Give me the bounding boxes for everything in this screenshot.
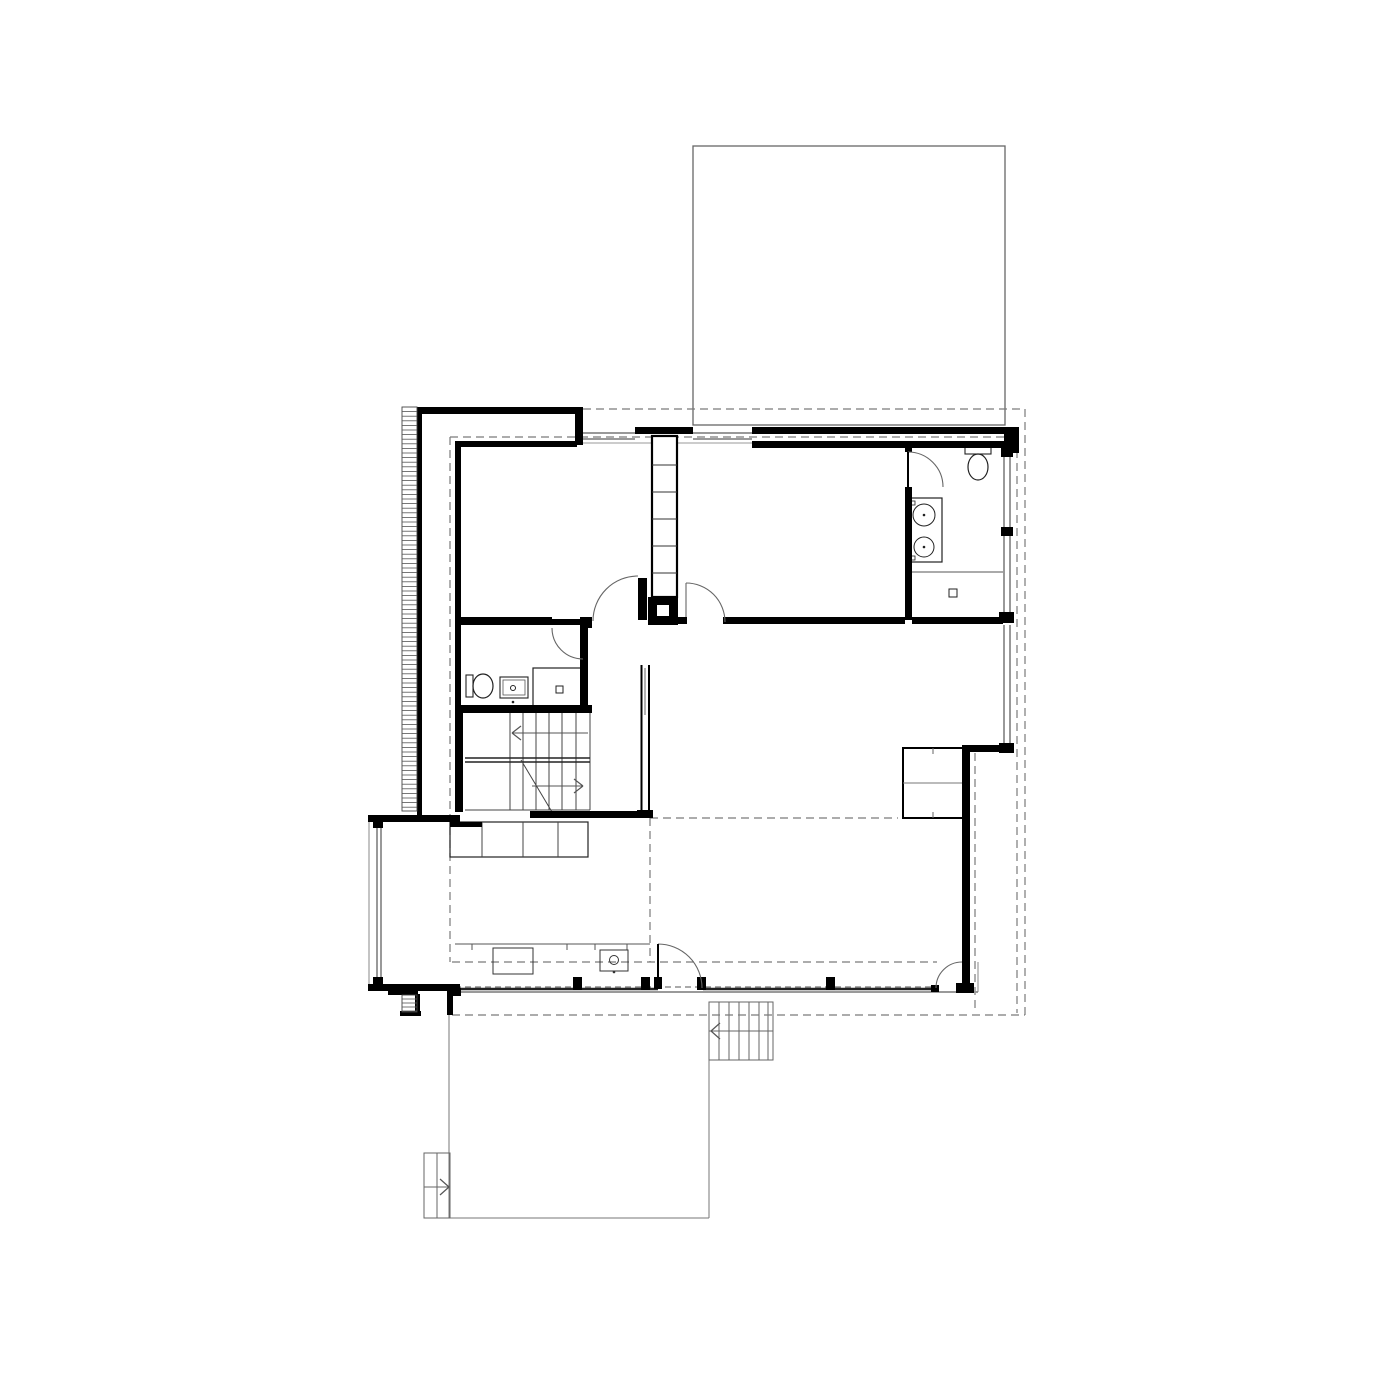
stair-down-arrow-head	[574, 779, 583, 786]
vanity-basin-dot	[923, 514, 926, 517]
east-window-mullion	[1001, 527, 1013, 536]
chimney-flue	[657, 605, 669, 616]
bay-mullion	[373, 977, 383, 985]
kitchen-sink-drain	[610, 956, 619, 965]
mullion-post	[641, 977, 650, 990]
wall-bedroom2-jamb	[678, 617, 687, 624]
east-window-corner	[999, 612, 1014, 623]
door-arc-bath-sw	[552, 628, 583, 659]
floor-plan-canvas	[0, 0, 1400, 1400]
floor-plan-page	[0, 0, 1400, 1400]
door-arc-bedroom2	[686, 583, 725, 622]
toilet-sw-tank	[466, 675, 473, 697]
vanity-basin-dot	[923, 546, 926, 549]
wall-bath-ne-bottom	[912, 617, 1003, 624]
wall-north-outer	[752, 427, 1006, 434]
wall-west-outer	[417, 407, 422, 817]
stair-up-arrow-head	[512, 733, 521, 740]
wall-north-band	[635, 427, 693, 434]
wall-north-west-jog	[575, 411, 583, 445]
east-window-corner	[999, 743, 1014, 753]
wall-north-west	[417, 407, 583, 414]
wall-sw-corner-cap	[447, 988, 461, 996]
toilet-sw-bowl	[473, 674, 493, 698]
sink-sw-drain	[511, 686, 516, 691]
door-arc-terrace	[658, 944, 702, 988]
mullion-post	[573, 977, 582, 990]
door-arc-bath-ne	[908, 452, 943, 487]
wall-bath-ne-west	[905, 487, 912, 620]
exterior-stair-sw-arrow	[440, 1187, 449, 1195]
vanity-ne	[907, 498, 942, 562]
stair-down-arrow-head	[574, 786, 583, 793]
sink-sw-dot	[512, 701, 515, 704]
understair-cabinet-cap	[450, 822, 482, 827]
wall-north-inner	[752, 441, 1006, 448]
bay-mullion	[373, 820, 383, 828]
wall-corner-piece	[580, 617, 592, 628]
wall-bedroom1-top	[455, 441, 577, 447]
door-jamb-block	[931, 985, 939, 992]
wall-bedroom1-left	[455, 441, 461, 625]
wall-sw-step	[388, 989, 418, 995]
shower-ne-drain	[949, 589, 957, 597]
wall-bath-ne-stub	[905, 443, 912, 452]
wall-stair-south	[530, 811, 652, 818]
shower-sw-drain	[556, 686, 563, 693]
wall-bath-sw-east	[580, 628, 588, 712]
kitchen-appliance	[493, 948, 533, 974]
wall-bath-sw-bottom	[455, 705, 592, 713]
toilet-ne-bowl	[968, 454, 988, 480]
wall-door-jamb	[638, 578, 647, 620]
upper-terrace-outline	[693, 146, 1005, 425]
wall-pocket-foot	[637, 810, 653, 818]
understair-cabinet	[450, 822, 588, 857]
wall-bedroom2-bottom	[723, 617, 905, 624]
wall-stair-west	[455, 713, 463, 812]
facade-hatch-sw	[402, 995, 417, 1012]
kitchen-sink-dot	[613, 971, 616, 974]
wall-bedroom1-bottom	[455, 617, 552, 625]
stair-up-arrow-head	[512, 726, 521, 733]
exterior-stair-sw-arrow	[440, 1179, 449, 1187]
shower-sw	[533, 668, 584, 711]
kitchen-sink	[600, 950, 628, 971]
east-window-mullion	[1001, 448, 1013, 457]
door-arc-bedroom1	[593, 576, 638, 621]
wall-bath-sw-left	[455, 625, 461, 712]
wall-living-east	[962, 748, 970, 990]
wall-se-corner	[956, 983, 974, 993]
sink-sw-inner	[503, 680, 525, 695]
mullion-post	[826, 977, 835, 990]
